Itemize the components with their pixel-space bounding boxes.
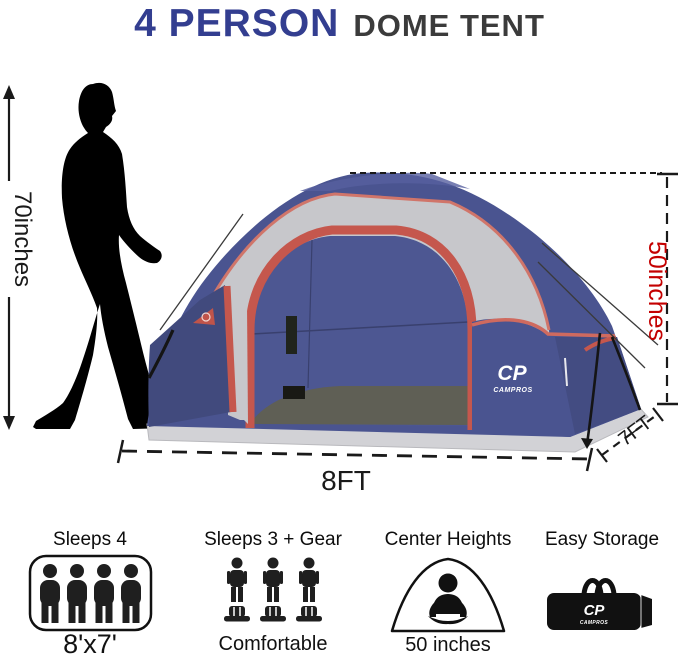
left-gray-sliver	[236, 302, 248, 424]
feature-caption: 50 inches	[405, 634, 491, 655]
tent-brand-cp: CP	[497, 362, 527, 385]
feature-title: Sleeps 4	[53, 528, 127, 552]
dome-tent-illustration: CP CAMPROS	[147, 172, 658, 452]
feature-title: Easy Storage	[545, 528, 659, 552]
product-infographic: 4 PERSON DOME TENT 70inches	[0, 0, 679, 655]
person-height-label: 70inches	[9, 191, 36, 287]
arrowhead-down-icon	[3, 416, 15, 430]
tent-sitting-person-icon	[389, 552, 507, 634]
feature-caption: Comfortable	[219, 633, 328, 655]
feature-easy-storage: Easy Storage CP CAMPROS	[527, 528, 677, 655]
feature-title: Sleeps 3 + Gear	[204, 528, 342, 552]
bag-brand-cp: CP	[584, 602, 606, 619]
feature-sleeps-4: Sleeps 4 8'x7'	[15, 528, 165, 655]
feature-title: Center Heights	[385, 528, 512, 552]
three-person-gear-icon	[213, 552, 333, 633]
arrowhead-up-icon	[3, 85, 15, 99]
door-tie	[286, 316, 297, 354]
bag-brand-campros: CAMPROS	[580, 620, 609, 626]
tent-brand-campros: CAMPROS	[493, 387, 532, 394]
carry-bag-icon: CP CAMPROS	[537, 552, 667, 655]
floor-item	[283, 386, 305, 399]
feature-center-heights: Center Heights 50 inches	[373, 528, 523, 655]
person-height-dimension: 70inches	[3, 85, 36, 430]
four-person-icon	[28, 552, 153, 633]
feature-sleeps-3-gear: Sleeps 3 + Gear	[198, 528, 348, 655]
tent-width-label: 8FT	[321, 465, 371, 496]
feature-caption: 8'x7'	[63, 633, 117, 655]
tent-height-label: 50inches	[643, 241, 671, 341]
